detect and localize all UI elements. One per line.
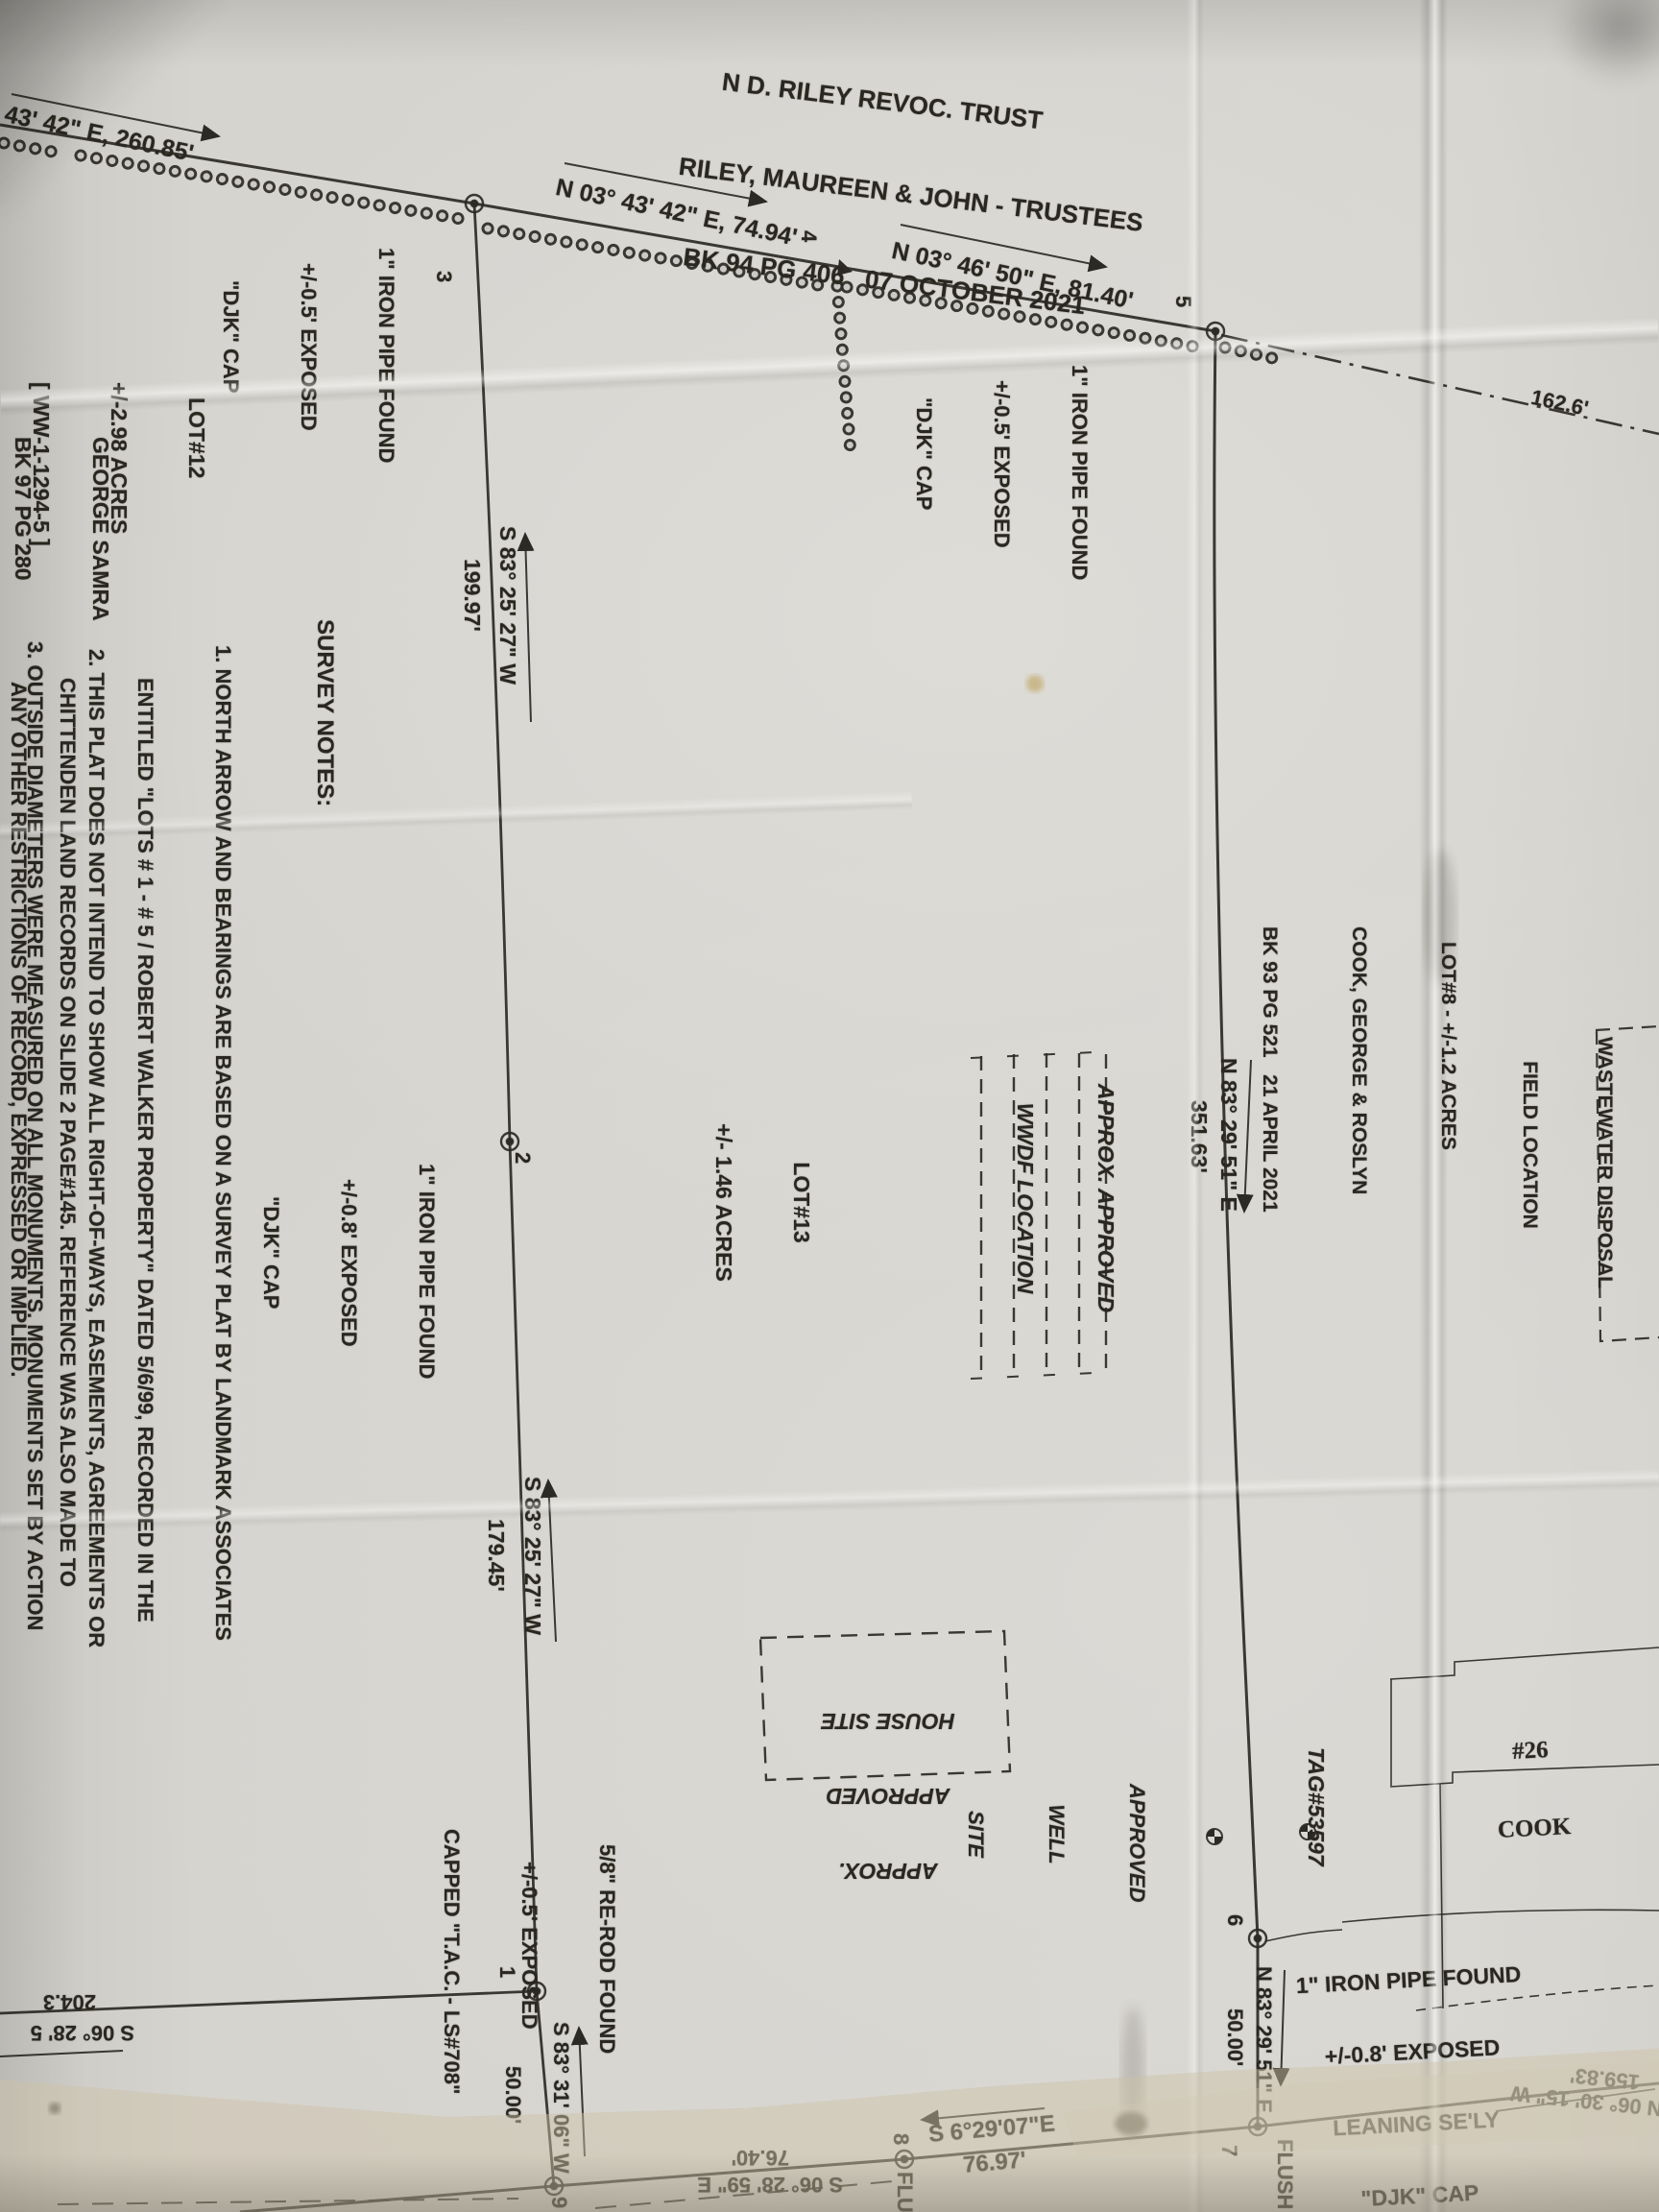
bearing-5000e-brg: N 83° 29' 51" E: [1251, 1966, 1277, 2113]
bearing-19997-dist: 199.97': [459, 559, 485, 632]
point-label-5: 5: [1170, 296, 1196, 307]
underline-06285: [0, 2051, 123, 2056]
distance-2043: 204.3: [0, 1989, 96, 2015]
cook26-label: #26 COOK: [1488, 1684, 1575, 1895]
rerod-label: 5/8" RE-ROD FOUND +/-0.5' EXPOSED CAPPED…: [387, 1829, 672, 2094]
iron-pipe-5-label: 1" IRON PIPE FOUND +/-0.5' EXPOSED "DJK"…: [859, 365, 1144, 580]
bearing-5000e-dist: 50.00': [1222, 2008, 1248, 2066]
bearing-35163-dist: 351.63': [1186, 1100, 1212, 1173]
wwdf-top-bracket: [971, 1051, 1116, 1058]
bearing-17945-dist: 179.45': [483, 1519, 509, 1592]
wwdf-label: APPROX. APPROVED WWDF LOCATION: [958, 1077, 1173, 1319]
wastewater-label: WASTEWATER DISPOSAL FIELD LOCATION: [1467, 1037, 1659, 1253]
point-label-4: 4: [796, 230, 822, 242]
distance-7640: 76.40': [712, 2145, 789, 2171]
iron-pipe-7-label: 1" IRON PIPE FOUND +/-0.8' EXPOSED LEANI…: [1286, 1914, 1543, 2212]
flush-7-label: FLUSH: [1272, 2139, 1298, 2209]
bearing-5000w-brg: S 83° 31' 06" W: [548, 2022, 574, 2174]
point-label-7: 7: [1216, 2145, 1242, 2156]
bearing-06285: S 06° 28' 5: [0, 2020, 134, 2046]
tag-label: TAG#53597: [1303, 1747, 1329, 1866]
bearing-35163-brg: N 83° 29' 51" E: [1215, 1058, 1241, 1212]
well-symbols: [1207, 1824, 1315, 1844]
well-site-label: APPROVED WELL SITE: [908, 1784, 1204, 1885]
bearing-7640: S 06° 28' 59" E: [672, 2172, 843, 2198]
point-label-6: 6: [1222, 1914, 1248, 1926]
survey-plat-photo: N D. RILEY REVOC. TRUST RILEY, MAUREEN &…: [0, 0, 1659, 2212]
arrow-17945: [548, 1480, 556, 1642]
lot13-label: LOT#13 +/- 1.46 ACRES: [659, 1109, 866, 1296]
flush-8-label: FLU: [892, 2172, 918, 2212]
title-block: N D. RILEY REVOC. TRUST RILEY, MAUREEN &…: [659, 4, 1163, 386]
bearing-17945-brg: S 83° 25' 27" W: [519, 1477, 545, 1635]
point-label-8: 8: [888, 2133, 914, 2145]
owner12-label: GEORGE SAMRA BK 97 PG 280 13 AUG. 2024: [0, 437, 165, 621]
point-label-2: 2: [510, 1152, 536, 1164]
wwdf-bottom-bracket: [971, 1372, 1116, 1379]
survey-note-4: 4. IT IS THE PROPERTY OWNERS RESP: [0, 637, 19, 1040]
title-line1: N D. RILEY REVOC. TRUST: [688, 63, 1156, 150]
survey-notes-header: SURVEY NOTES:: [312, 619, 338, 806]
road-edge-dash-1: [58, 2199, 518, 2204]
arrow-5000e: [1281, 1970, 1285, 2085]
point-label-9: 9: [546, 2197, 572, 2208]
bearing-7697-dist: 76.97': [962, 2147, 1027, 2178]
dashdot-line-162: [1221, 335, 1659, 434]
arrow-19997: [525, 534, 531, 722]
bearing-5000w-dist: 50.00': [500, 2066, 526, 2124]
lot-line-east: [1214, 331, 1258, 2127]
bearing-19997-brg: S 83° 25' 27" W: [494, 526, 520, 685]
